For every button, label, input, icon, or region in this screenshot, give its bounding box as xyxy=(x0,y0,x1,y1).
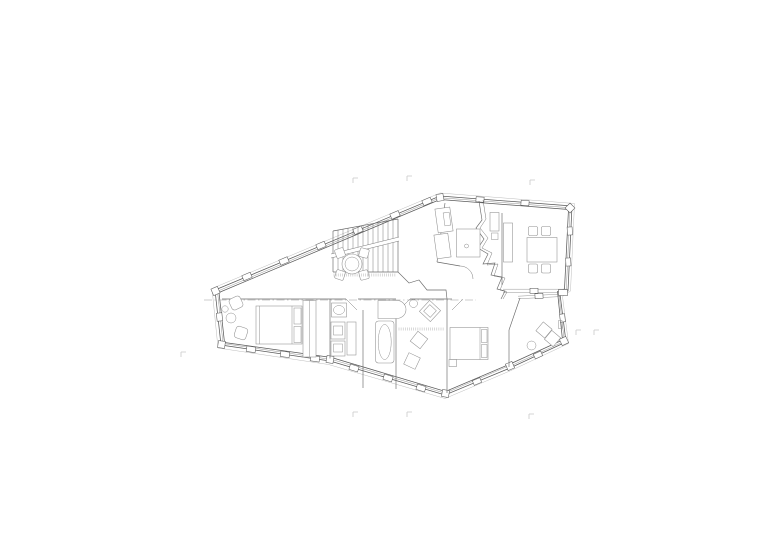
tall-cabinet xyxy=(347,322,356,355)
dining-table xyxy=(527,238,557,263)
inner-wall xyxy=(219,200,569,392)
dining-chair xyxy=(542,227,551,236)
terrace-furniture xyxy=(527,321,562,351)
section-marker xyxy=(529,414,534,419)
bedroom-west-furniture xyxy=(222,295,316,357)
dining-furniture xyxy=(504,223,558,273)
cabinet xyxy=(331,322,345,339)
nightstand xyxy=(449,360,457,367)
floor-cushion xyxy=(419,300,440,321)
curved-shower xyxy=(378,301,406,319)
armchair xyxy=(228,295,244,311)
section-marker xyxy=(594,330,599,335)
dining-chair xyxy=(542,264,551,273)
chair xyxy=(334,247,346,259)
dining-chair xyxy=(529,227,538,236)
exterior-walls xyxy=(215,196,572,395)
chair xyxy=(359,270,370,281)
closet xyxy=(434,233,451,259)
chair xyxy=(358,247,369,258)
double-bed xyxy=(450,328,488,360)
section-marker xyxy=(530,180,535,185)
section-marker xyxy=(576,330,581,335)
sideboard xyxy=(504,223,513,262)
pouf xyxy=(222,306,228,312)
cabinet xyxy=(331,341,345,356)
page xyxy=(0,0,780,551)
window-glazing xyxy=(217,198,570,393)
wc-pan xyxy=(490,213,499,232)
shower-enclosure xyxy=(457,229,481,257)
outer-wall xyxy=(215,196,572,395)
section-marker xyxy=(353,412,358,417)
loggia-table xyxy=(527,341,536,350)
eave-polygon xyxy=(212,193,575,399)
floor-cushion xyxy=(404,353,421,370)
dining-chair xyxy=(529,264,538,273)
floor-cushion xyxy=(410,331,428,349)
side-table xyxy=(226,313,236,323)
stool xyxy=(410,300,418,308)
eave-outline xyxy=(212,193,575,399)
section-marker xyxy=(181,352,186,357)
section-marker xyxy=(407,176,412,181)
bedroom-middle-furniture xyxy=(404,300,441,369)
double-bed xyxy=(256,306,302,344)
floor-plan-drawing xyxy=(0,0,780,551)
bedroom-east-furniture xyxy=(449,328,488,367)
dressing-bath-fixtures xyxy=(434,207,499,259)
section-marker xyxy=(353,178,358,183)
armchair xyxy=(233,325,248,340)
wc-fixtures xyxy=(331,303,356,356)
section-marker xyxy=(407,412,412,417)
